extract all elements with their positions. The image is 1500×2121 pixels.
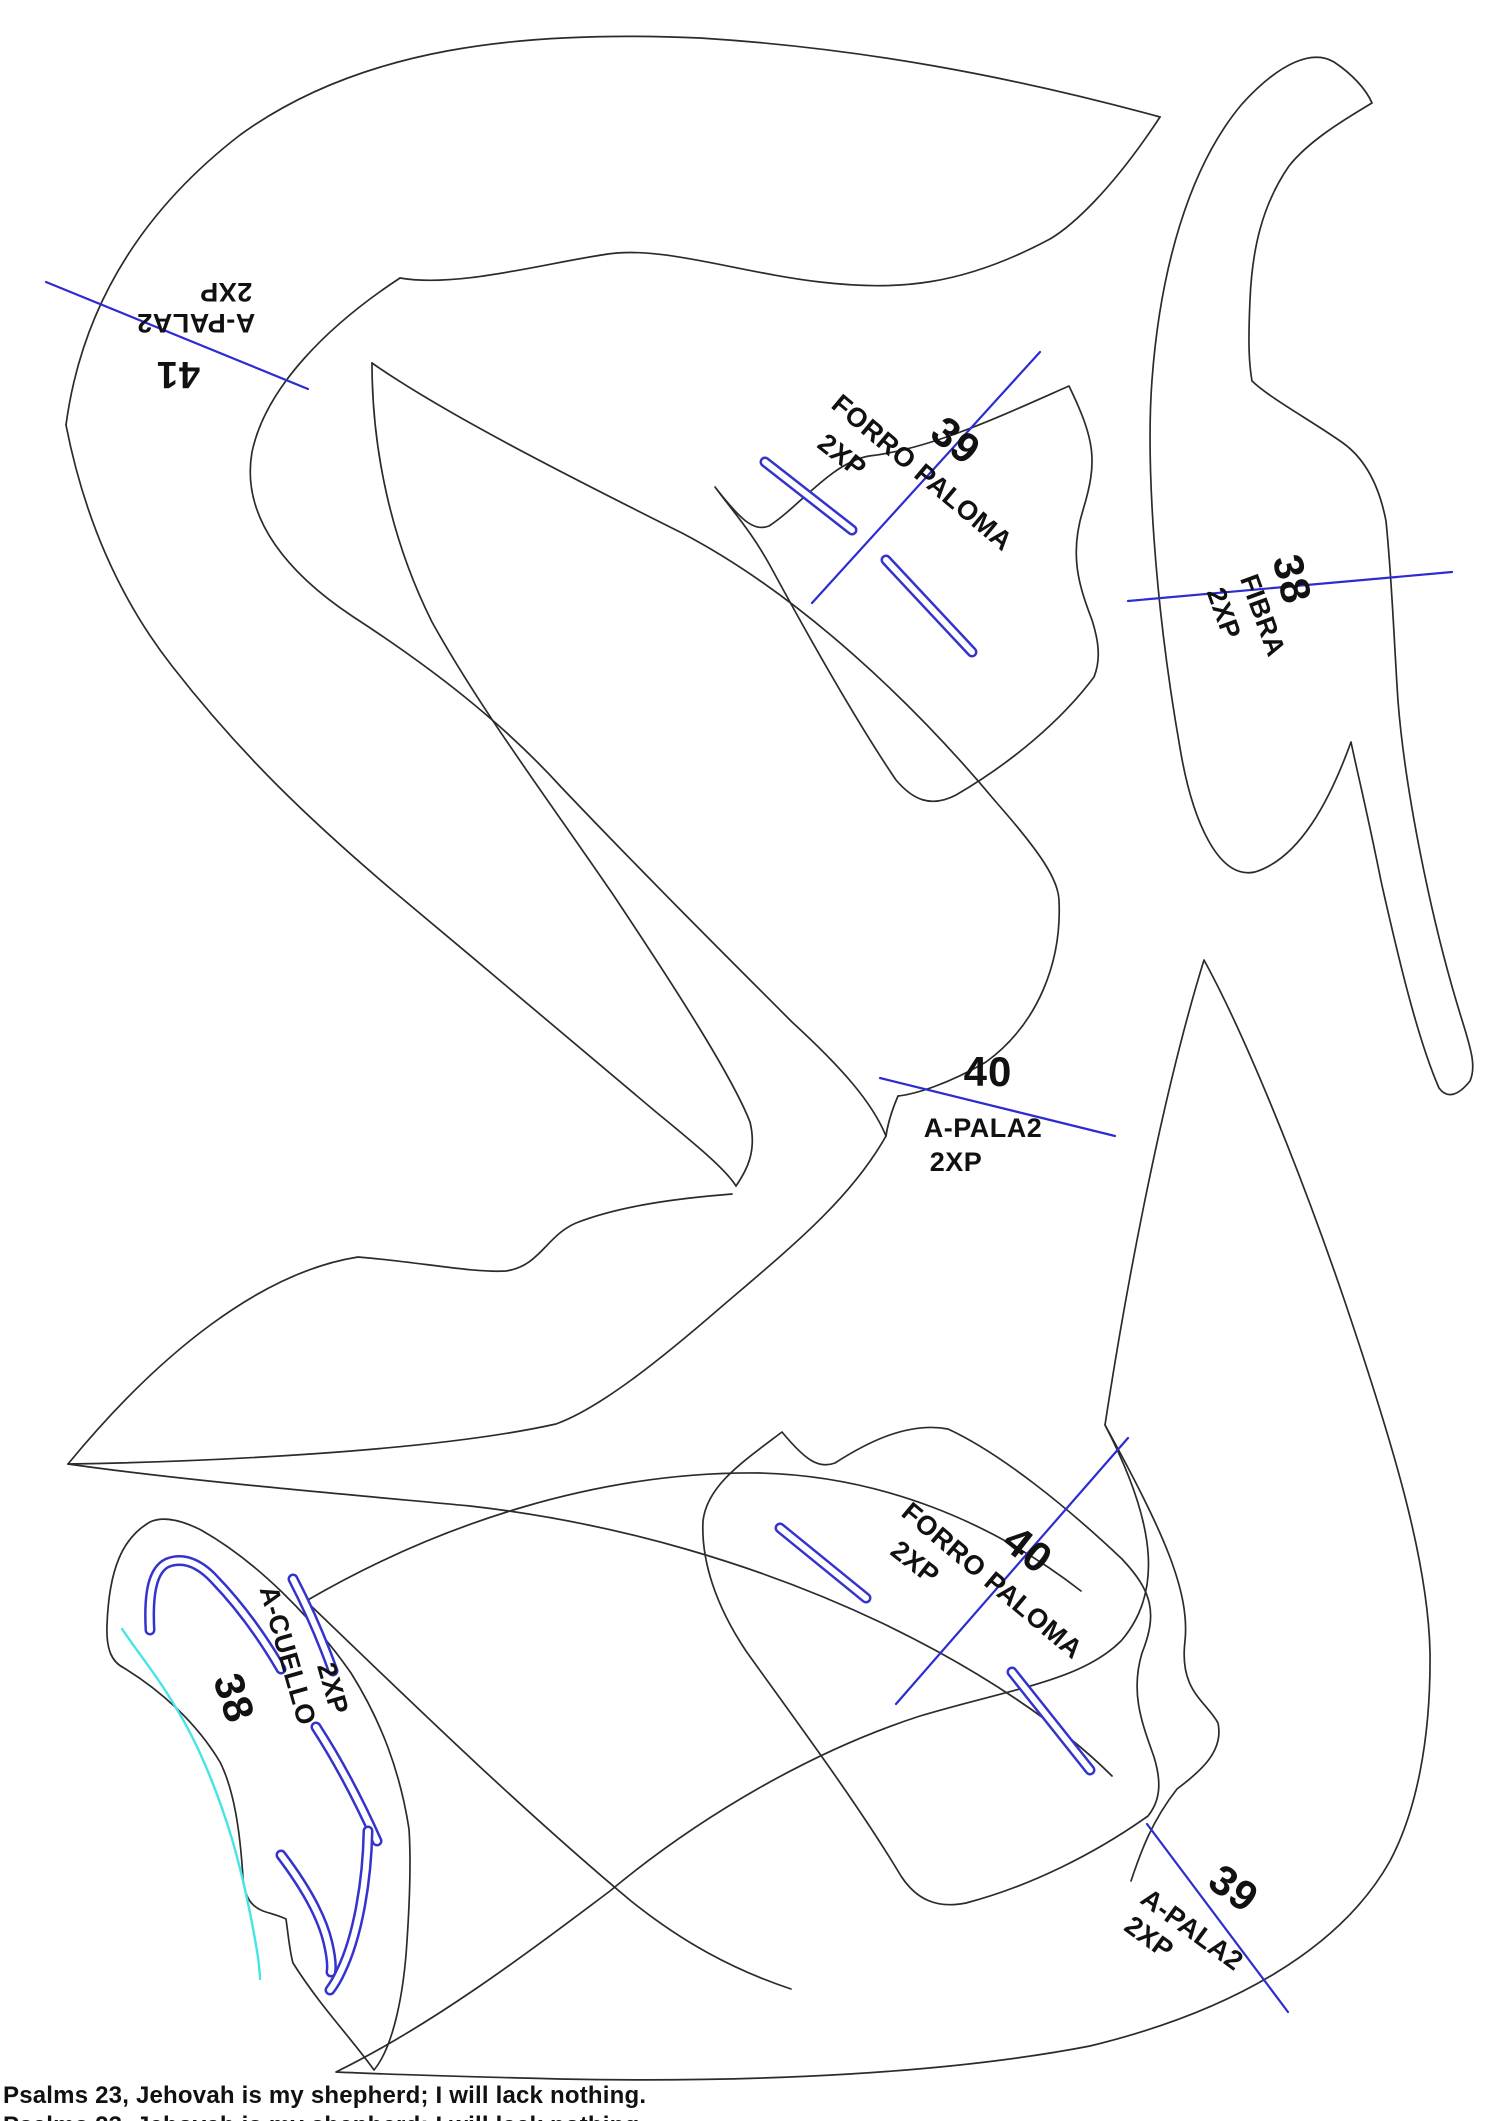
cuello38-slot-4: [281, 1855, 331, 1972]
label-forro39: 39 FORRO PALOMA 2XP: [812, 388, 1018, 556]
crescent-right-edge: [372, 363, 752, 1186]
piece-outline-crescent: [66, 363, 752, 1186]
cuello38-name: A-CUELLO: [254, 1582, 322, 1728]
piece-outline-forro40: [703, 1427, 1159, 1904]
pala40-size: 40: [964, 1048, 1013, 1095]
label-pala41: 2XP A-PALA2 41: [137, 277, 256, 395]
pala40-name: A-PALA2: [924, 1113, 1043, 1143]
pala41-arm-left-edge: [250, 278, 886, 1136]
pala40-tail-bottom-edge: [68, 1464, 1112, 1776]
label-pala40: 40 A-PALA2 2XP: [924, 1048, 1043, 1177]
forro39-slot-2-core: [886, 560, 972, 652]
pala39-size: 39: [1200, 1855, 1267, 1922]
forro40-slot-2-core: [1012, 1672, 1090, 1770]
pala40-body-left-edge: [68, 1136, 886, 1464]
grain-lines: [46, 282, 1452, 2012]
pala41-size: 41: [156, 353, 200, 395]
label-fibra38: 38 FIBRA 2XP: [1201, 550, 1321, 661]
forro40-slot-1-core: [780, 1528, 866, 1598]
pala41-arm-right-edge: [372, 363, 1059, 1136]
pala40-qty: 2XP: [930, 1147, 983, 1177]
pattern-sheet: 2XP A-PALA2 41 39 FORRO PALOMA 2XP 38 FI…: [0, 0, 1500, 2121]
piece-outline-pala39: [306, 960, 1430, 2080]
pala41-lower-edge: [400, 117, 1160, 286]
crescent-left-edge: [66, 425, 736, 1186]
label-pala39: 39 A-PALA2 2XP: [1119, 1855, 1267, 1977]
pala39-arm-lower-edge: [306, 1601, 791, 1989]
footer-caption: Psalms 23, Jehovah is my shepherd; I wil…: [3, 2082, 646, 2110]
pala41-outer-arc: [66, 36, 1160, 425]
pala41-name: A-PALA2: [137, 308, 256, 338]
cuello38-size: 38: [204, 1668, 264, 1729]
pala41-qty: 2XP: [200, 277, 253, 307]
piece-outline-pala41: [66, 36, 1160, 1136]
footer-caption-clipped: Psalms 23, Jehovah is my shepherd; I wil…: [3, 2112, 646, 2121]
pala39-left-notch-edge: [1105, 1425, 1219, 1881]
cuello38-slot-3-core: [316, 1727, 377, 1841]
pala40-tail-top-edge: [68, 1194, 732, 1464]
forro40-outline: [703, 1427, 1159, 1904]
